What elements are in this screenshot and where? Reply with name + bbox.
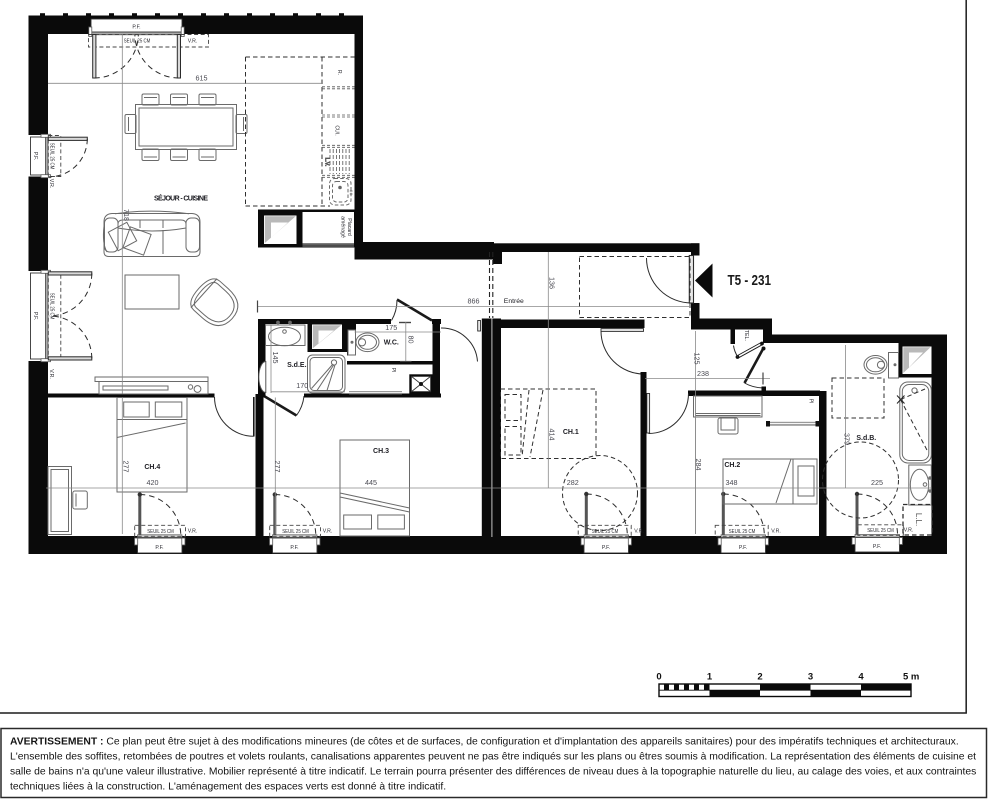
svg-text:145: 145 — [271, 352, 280, 364]
svg-text:80: 80 — [407, 336, 416, 344]
svg-text:CUI.: CUI. — [334, 125, 340, 135]
svg-text:P.F.: P.F. — [132, 25, 140, 31]
svg-text:techniques liées à la construc: techniques liées à la construction. L'am… — [10, 782, 446, 793]
svg-text:S.d.B.: S.d.B. — [856, 435, 876, 442]
svg-text:282: 282 — [567, 478, 579, 487]
svg-text:5 m: 5 m — [903, 672, 919, 683]
svg-text:S.d.E.: S.d.E. — [287, 362, 307, 369]
svg-text:414: 414 — [548, 429, 557, 441]
svg-text:170: 170 — [296, 381, 308, 390]
svg-text:4: 4 — [858, 672, 864, 683]
svg-text:P.F.: P.F. — [32, 152, 38, 160]
svg-text:SEUIL 25 CM: SEUIL 25 CM — [282, 529, 309, 535]
svg-text:379: 379 — [843, 433, 852, 445]
svg-text:3: 3 — [808, 672, 813, 683]
svg-text:P.F.: P.F. — [602, 545, 610, 551]
svg-text:2: 2 — [757, 672, 762, 683]
svg-text:TEL.: TEL. — [743, 330, 749, 341]
svg-text:CH.2: CH.2 — [724, 462, 740, 469]
svg-text:SEUIL 25 CM: SEUIL 25 CM — [49, 143, 55, 170]
svg-text:Pl: Pl — [390, 368, 396, 373]
svg-text:277: 277 — [273, 461, 282, 473]
svg-text:V.R.: V.R. — [48, 369, 54, 379]
svg-text:420: 420 — [147, 478, 159, 487]
svg-text:P.F.: P.F. — [873, 544, 881, 550]
svg-text:866: 866 — [468, 297, 480, 306]
svg-text:Entrée: Entrée — [504, 298, 524, 305]
svg-text:445: 445 — [365, 478, 377, 487]
svg-text:P.F.: P.F. — [739, 545, 747, 551]
svg-text:P.F.: P.F. — [290, 545, 298, 551]
svg-text:238: 238 — [697, 369, 709, 378]
svg-text:L.V.: L.V. — [324, 158, 330, 167]
svg-text:0: 0 — [656, 672, 661, 683]
svg-text:SEUIL 25 CM: SEUIL 25 CM — [147, 529, 174, 535]
svg-text:P.F.: P.F. — [155, 545, 163, 551]
svg-text:348: 348 — [726, 478, 738, 487]
svg-text:AVERTISSEMENT : Ce plan peut ê: AVERTISSEMENT : Ce plan peut être sujet … — [10, 737, 959, 748]
svg-text:V.R.: V.R. — [771, 529, 781, 535]
svg-text:T5 - 231: T5 - 231 — [728, 273, 772, 289]
svg-text:125: 125 — [693, 353, 702, 365]
svg-text:R.: R. — [336, 70, 342, 75]
svg-text:L.L.: L.L. — [914, 513, 923, 526]
svg-text:V.R.: V.R. — [323, 529, 333, 535]
svg-text:V.R.: V.R. — [48, 179, 54, 189]
svg-text:718: 718 — [122, 209, 131, 221]
svg-text:277: 277 — [122, 461, 131, 473]
svg-text:V.R.: V.R. — [188, 39, 198, 45]
svg-text:136: 136 — [548, 277, 557, 289]
svg-text:V.R.: V.R. — [634, 529, 644, 535]
svg-text:CH.3: CH.3 — [373, 448, 389, 455]
svg-text:225: 225 — [871, 478, 883, 487]
svg-text:1: 1 — [707, 672, 713, 683]
svg-text:175: 175 — [385, 323, 397, 332]
svg-text:284: 284 — [694, 459, 703, 471]
svg-text:SEUIL 25 CM: SEUIL 25 CM — [729, 529, 756, 535]
svg-text:SÉJOUR - CUISINE: SÉJOUR - CUISINE — [154, 194, 208, 203]
svg-text:CH.1: CH.1 — [563, 429, 579, 436]
svg-text:Placard: Placard — [346, 218, 352, 236]
svg-text:V.R.: V.R. — [904, 528, 914, 534]
svg-text:L'ensemble des soffites, retom: L'ensemble des soffites, retombées de po… — [10, 752, 976, 763]
svg-text:Pl: Pl — [808, 399, 814, 404]
svg-text:615: 615 — [196, 74, 208, 83]
svg-text:SEUIL 25 CM: SEUIL 25 CM — [867, 528, 894, 534]
svg-text:CH.4: CH.4 — [144, 464, 160, 471]
svg-text:W.C.: W.C. — [384, 340, 399, 347]
svg-text:aménagé: aménagé — [340, 216, 346, 238]
svg-text:salle de bains n'a qu'une vale: salle de bains n'a qu'une valeur illustr… — [10, 767, 976, 778]
svg-text:V.R.: V.R. — [188, 529, 198, 535]
svg-text:P.F.: P.F. — [32, 312, 38, 320]
